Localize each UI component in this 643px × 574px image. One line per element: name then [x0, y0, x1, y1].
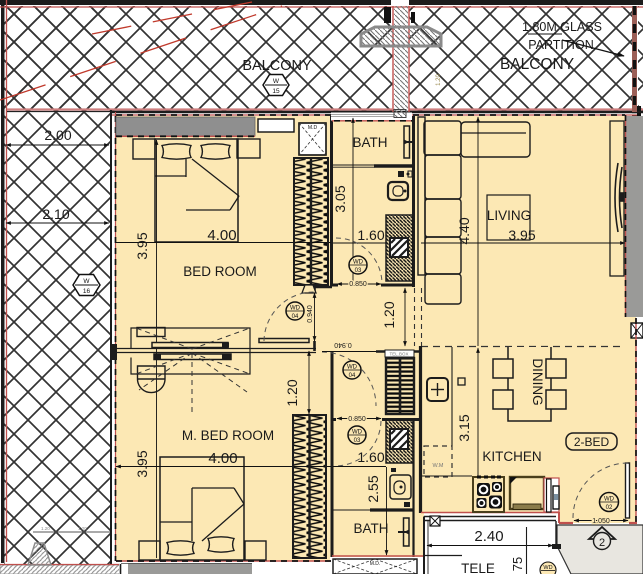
svg-text:W.M: W.M	[433, 463, 444, 469]
svg-text:BALCONY: BALCONY	[500, 56, 574, 73]
svg-text:1.80M GLASS: 1.80M GLASS	[522, 20, 602, 34]
svg-text:16: 16	[83, 288, 91, 295]
svg-text:3.95: 3.95	[508, 227, 535, 243]
svg-text:BALCONY: BALCONY	[242, 58, 312, 74]
svg-text:02: 02	[606, 505, 613, 511]
svg-text:M.D: M.D	[308, 125, 318, 131]
svg-text:03: 03	[354, 438, 361, 444]
svg-text:TELE: TELE	[461, 561, 495, 574]
svg-text:3.05: 3.05	[332, 185, 348, 212]
svg-text:04: 04	[292, 314, 299, 320]
svg-text:3.15: 3.15	[456, 414, 472, 441]
svg-text:2-BED: 2-BED	[574, 435, 610, 449]
svg-text:1.60: 1.60	[357, 227, 384, 243]
svg-text:2.00: 2.00	[44, 127, 71, 143]
svg-text:TEL.BOX: TEL.BOX	[389, 352, 408, 357]
svg-text:1.050: 1.050	[592, 518, 610, 525]
svg-text:15: 15	[272, 88, 280, 95]
svg-text:M.D.: M.D.	[370, 561, 381, 567]
svg-text:3.95: 3.95	[134, 450, 150, 477]
svg-text:2.10: 2.10	[42, 206, 69, 222]
svg-text:BED ROOM: BED ROOM	[183, 264, 257, 279]
svg-text:W: W	[83, 278, 90, 285]
svg-text:1.60: 1.60	[357, 449, 384, 465]
svg-text:1.20: 1.20	[41, 526, 50, 531]
svg-text:2.55: 2.55	[365, 475, 381, 502]
svg-text:04: 04	[349, 373, 356, 379]
svg-text:1.20: 1.20	[284, 379, 300, 406]
svg-text:DINING: DINING	[530, 358, 545, 405]
svg-text:1.20: 1.20	[381, 301, 397, 328]
svg-text:0.850: 0.850	[349, 281, 367, 288]
svg-text:W: W	[273, 78, 280, 85]
svg-text:KITCHEN: KITCHEN	[482, 449, 541, 464]
svg-text:2.40: 2.40	[474, 528, 503, 545]
svg-text:4.40: 4.40	[456, 217, 472, 244]
svg-text:M. BED ROOM: M. BED ROOM	[182, 428, 274, 443]
svg-text:75: 75	[510, 557, 525, 571]
svg-text:4.00: 4.00	[207, 227, 236, 244]
svg-text:PARTITION: PARTITION	[528, 38, 594, 52]
svg-text:03: 03	[355, 268, 362, 274]
svg-text:BATH: BATH	[353, 521, 388, 536]
svg-text:0.940: 0.940	[334, 341, 352, 348]
svg-text:4.00: 4.00	[208, 450, 237, 467]
svg-text:BATH: BATH	[352, 135, 387, 150]
svg-text:3.95: 3.95	[134, 232, 150, 259]
svg-text:2: 2	[599, 537, 605, 549]
svg-text:0.940: 0.940	[307, 305, 314, 323]
svg-text:1.20: 1.20	[436, 74, 442, 86]
svg-text:LIVING: LIVING	[487, 208, 531, 223]
svg-text:1.20: 1.20	[78, 526, 87, 531]
svg-text:0.850: 0.850	[348, 416, 366, 423]
